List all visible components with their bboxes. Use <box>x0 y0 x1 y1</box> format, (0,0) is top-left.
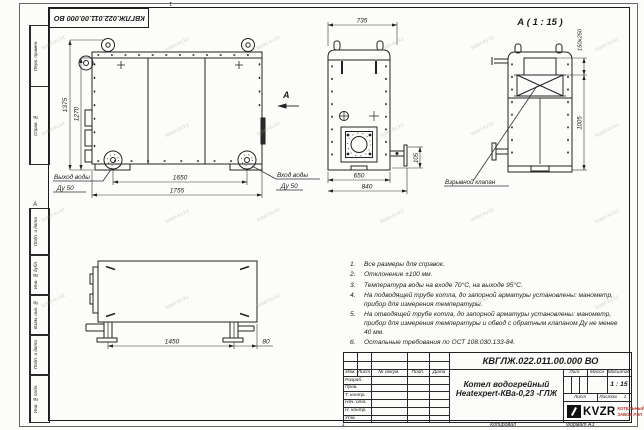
note-number: 1. <box>350 261 364 270</box>
col-list: Лист <box>357 369 371 376</box>
note-6: 6. Остальные требования по ОСТ 108.030.1… <box>350 339 624 348</box>
note-text: На отводящей трубе котла, до запорной ар… <box>364 311 624 337</box>
inlet-dn-label: Ду 50 <box>280 183 298 190</box>
massa-label: Масса <box>587 369 607 376</box>
row-tkontr: Т. контр. <box>345 392 371 399</box>
note-text: Отклонение ±100 мм. <box>364 271 624 280</box>
row-prov: Пров. <box>345 384 371 391</box>
top-view-dims <box>328 22 423 194</box>
product-name-cell: Котел водогрейный Heatexpert-КВа-0,23 -Г… <box>450 371 563 405</box>
dim-1375: 1375 <box>62 97 69 112</box>
view-arrow-label: А <box>282 90 290 100</box>
logo-subtitle-line2: ЗАВОД РЭП <box>618 412 644 417</box>
technical-notes: 1. Все размеры для справок. 2. Отклонени… <box>350 261 624 349</box>
col-data: Дата <box>429 369 449 376</box>
side-view <box>86 261 257 342</box>
note-1: 1. Все размеры для справок. <box>350 261 624 270</box>
dim-105: 105 <box>414 152 420 163</box>
row-razrab: Разраб. <box>345 377 371 384</box>
logo-mark <box>567 405 581 418</box>
note-number: 4. <box>350 292 364 310</box>
listov-value: 1 <box>619 393 631 401</box>
dim-1270: 1270 <box>74 106 81 121</box>
dim-840: 840 <box>362 184 373 191</box>
product-name-line1: Котел водогрейный <box>464 379 550 389</box>
col-izm: Изм. <box>344 369 357 376</box>
col-docum: № докум. <box>371 369 407 376</box>
masshtab-label: Масштаб <box>607 369 631 376</box>
copied-label: Копировал <box>480 422 526 428</box>
side-view-texts: 1450 80 <box>165 339 270 346</box>
top-view <box>328 41 407 170</box>
note-4: 4. На подводящей трубе котла, до запорно… <box>350 292 624 310</box>
scale-value: 1 : 15 <box>607 376 631 393</box>
note-number: 2. <box>350 271 364 280</box>
dim-1650: 1650 <box>173 175 188 182</box>
detail-view-texts: А ( 1 : 15 ) 150x250 1005 Взрывной клапа… <box>445 17 584 186</box>
dim-1005: 1005 <box>578 116 584 130</box>
dim-150x250: 150x250 <box>578 28 584 51</box>
side-view-dims <box>108 324 273 349</box>
outlet-label: Выход воды <box>54 173 90 181</box>
note-3: 3. Температура воды на входе 70°С, на вы… <box>350 282 624 291</box>
product-name-line2: Heatexpert-КВа-0,23 -ГЛЖ <box>456 389 557 398</box>
list-label: Лист <box>563 393 597 401</box>
note-number: 6. <box>350 339 364 348</box>
note-text: Остальные требования по ОСТ 108.030.133-… <box>364 339 624 348</box>
front-view <box>79 39 265 171</box>
lit-label: Лит. <box>563 369 587 376</box>
detail-title: А ( 1 : 15 ) <box>516 17 562 28</box>
note-number: 5. <box>350 311 364 337</box>
note-text: Температура воды на входе 70°С, на выход… <box>364 282 624 291</box>
inlet-label: Вход воды <box>277 171 308 179</box>
dim-1755: 1755 <box>170 188 185 195</box>
col-podp: Подп. <box>407 369 429 376</box>
row-nachotd: Нач. отд. <box>345 399 371 406</box>
dim-80: 80 <box>262 339 270 346</box>
note-text: Все размеры для справок. <box>364 261 624 270</box>
format-label: Формат А3 <box>566 422 594 428</box>
titleblock-doc-number: КВГЛЖ.022.011.00.000 ВО <box>450 353 631 369</box>
logo-kvzr-text: KVZR <box>583 406 616 418</box>
company-logo: KVZR КОТЕЛЬНЫЙ ЗАВОД РЭП <box>564 401 631 422</box>
dim-650: 650 <box>354 173 365 180</box>
dim-1450: 1450 <box>165 339 180 346</box>
note-5: 5. На отводящей трубе котла, до запорной… <box>350 311 624 337</box>
title-block: КВГЛЖ.022.011.00.000 ВО Изм. Лист № доку… <box>343 352 632 423</box>
dim-735: 735 <box>357 18 368 25</box>
detail-view-dims <box>444 58 587 186</box>
note-text: На подводящей трубе котла, до запорной а… <box>364 292 624 310</box>
explosion-valve-callout: Взрывной клапан <box>445 179 496 186</box>
drawing-sheet: kotel-kv.kz kotel-kv.kz kotel-kv.kz kote… <box>0 0 644 430</box>
row-nkontr: Н. контр. <box>345 407 371 414</box>
outlet-dn-label: Ду 50 <box>56 185 74 192</box>
note-number: 3. <box>350 282 364 291</box>
listov-label: Листов <box>597 393 619 401</box>
row-utv: Утв. <box>345 415 371 422</box>
detail-view <box>492 44 572 172</box>
note-2: 2. Отклонение ±100 мм. <box>350 271 624 280</box>
